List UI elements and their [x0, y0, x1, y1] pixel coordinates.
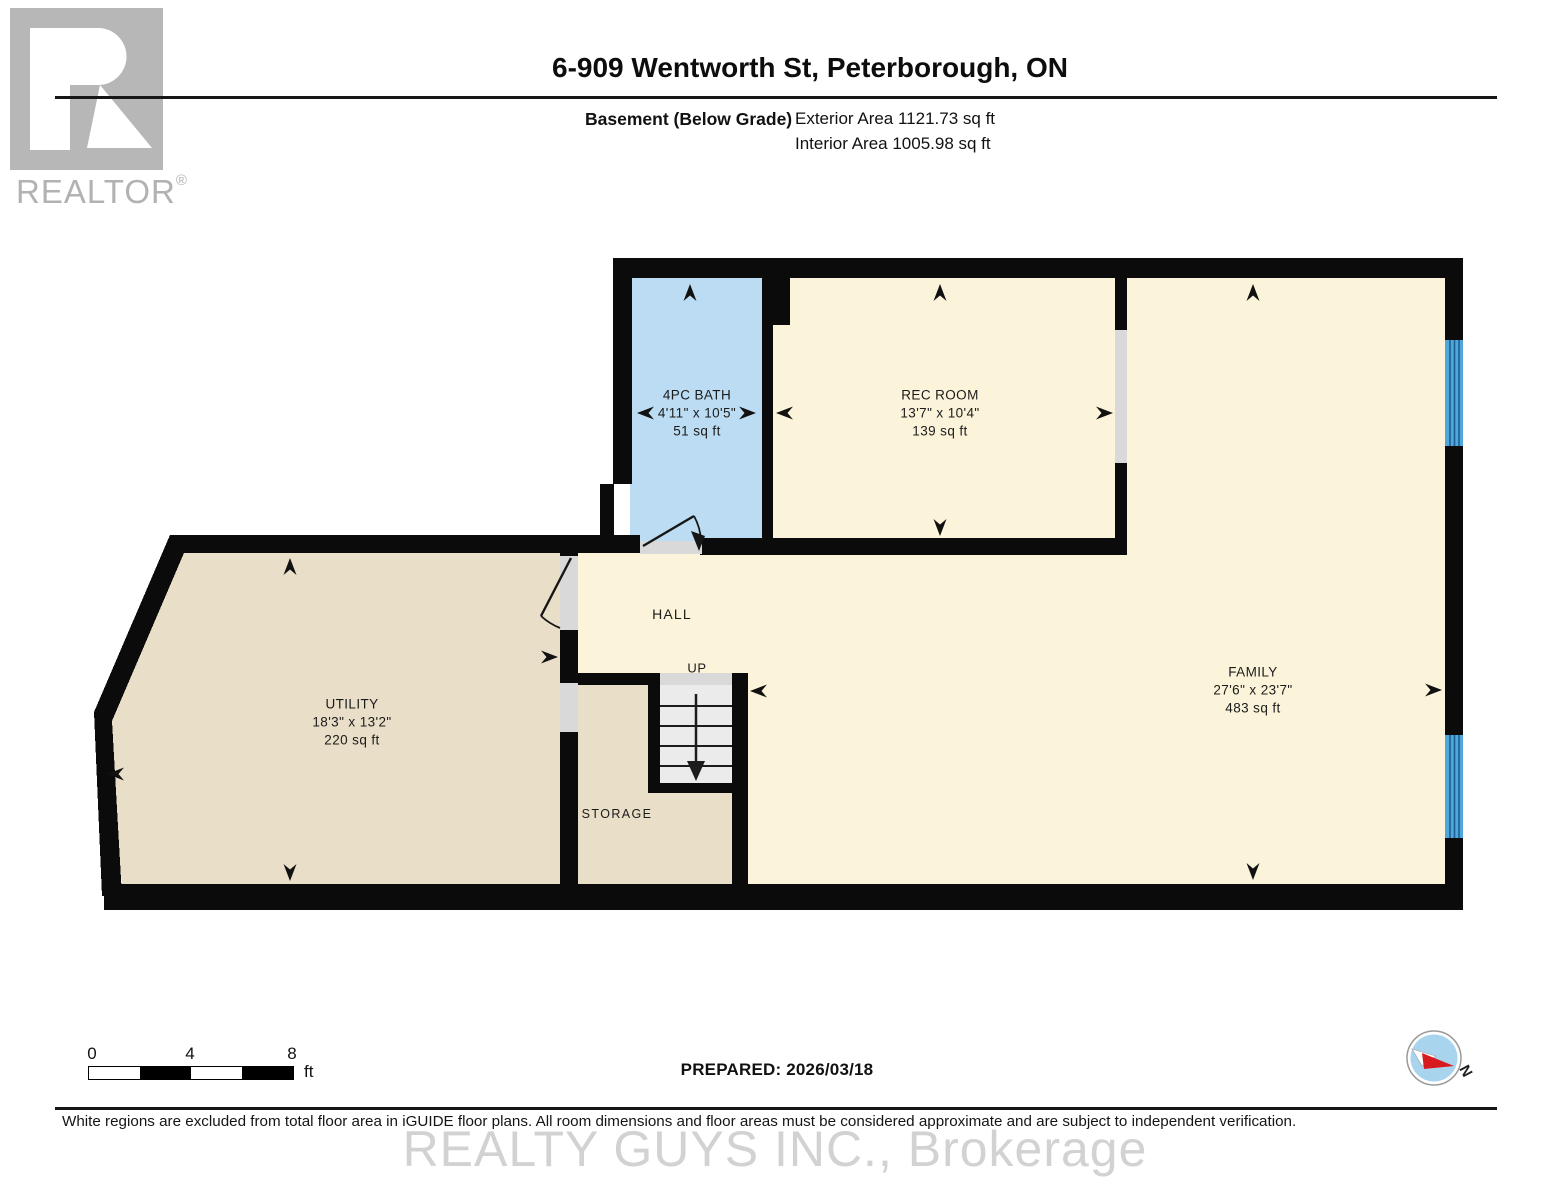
prepared-date: PREPARED: 2026/03/18	[681, 1060, 874, 1080]
wall-bath-left	[613, 258, 632, 484]
scale-bar-segments	[88, 1066, 294, 1080]
scale-tick-4: 4	[185, 1044, 194, 1064]
scale-segment	[140, 1067, 191, 1079]
room-name: UTILITY	[312, 695, 391, 713]
room-label-utility: UTILITY 18'3" x 13'2" 220 sq ft	[312, 695, 391, 748]
scale-unit: ft	[304, 1062, 313, 1082]
utility-storage-opening	[560, 683, 578, 732]
scale-tick-8: 8	[287, 1044, 296, 1064]
room-dims: 27'6" x 23'7"	[1213, 681, 1292, 699]
disclaimer-text: White regions are excluded from total fl…	[62, 1113, 1296, 1130]
wall-bottom	[104, 884, 1463, 910]
room-label-family: FAMILY 27'6" x 23'7" 483 sq ft	[1213, 663, 1292, 716]
room-label-4pc-bath: 4PC BATH 4'11" x 10'5" 51 sq ft	[658, 386, 736, 439]
wall-storage-top	[578, 673, 660, 685]
scale-segment	[89, 1067, 140, 1079]
room-name: FAMILY	[1213, 663, 1292, 681]
room-dims: 18'3" x 13'2"	[312, 713, 391, 731]
scale-segment	[242, 1067, 293, 1079]
scale-tick-0: 0	[87, 1044, 96, 1064]
rec-family-opening	[1115, 330, 1127, 463]
wall-rec-corner-notch	[762, 278, 790, 325]
up-label: UP	[687, 661, 706, 676]
floorplan-page: REALTOR® 6-909 Wentworth St, Peterboroug…	[0, 0, 1553, 1200]
family-room-floor	[1127, 278, 1445, 884]
wall-top	[615, 258, 1463, 278]
storage-label: STORAGE	[582, 807, 653, 821]
wall-stair-left	[648, 673, 660, 793]
excluded-white-notch	[614, 484, 630, 535]
room-area: 220 sq ft	[312, 731, 391, 749]
floor-plan-canvas	[0, 0, 1553, 1200]
staircase	[660, 685, 732, 783]
room-dims: 13'7" x 10'4"	[900, 404, 979, 422]
room-name: 4PC BATH	[658, 386, 736, 404]
room-area: 139 sq ft	[900, 422, 979, 440]
hall-label: HALL	[652, 606, 692, 622]
scale-bar: 0 4 8 ft	[88, 1044, 418, 1084]
wall-rec-bottom	[700, 538, 1127, 555]
scale-segment	[191, 1067, 242, 1079]
wall-stair-bottom	[648, 783, 732, 793]
room-dims: 4'11" x 10'5"	[658, 404, 736, 422]
wall-stair-right	[732, 673, 748, 884]
footer-divider	[55, 1107, 1497, 1110]
room-area: 483 sq ft	[1213, 699, 1292, 717]
compass-icon: N	[1396, 1020, 1486, 1104]
room-name: REC ROOM	[900, 386, 979, 404]
room-area: 51 sq ft	[658, 422, 736, 440]
room-label-rec-room: REC ROOM 13'7" x 10'4" 139 sq ft	[900, 386, 979, 439]
wall-bath-left-jog	[600, 484, 614, 553]
utility-door-opening	[560, 556, 578, 630]
room-fills	[104, 278, 1445, 884]
